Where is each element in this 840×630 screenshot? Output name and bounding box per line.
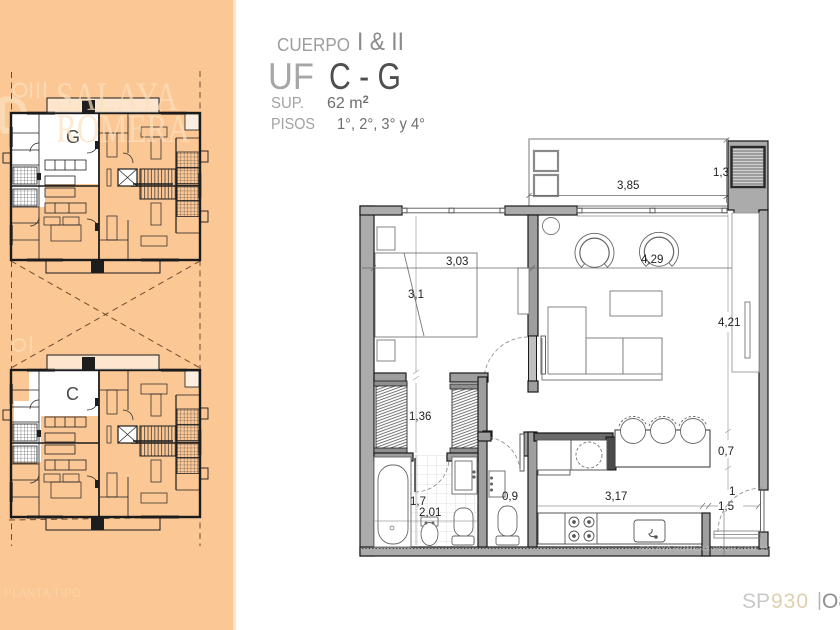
svg-text:O8: O8 bbox=[822, 590, 840, 613]
svg-text:SP: SP bbox=[742, 590, 770, 613]
svg-text:ROMERA: ROMERA bbox=[56, 106, 190, 151]
svg-text:3,85: 3,85 bbox=[617, 180, 639, 192]
svg-text:1°, 2°, 3° y 4°: 1°, 2°, 3° y 4° bbox=[337, 116, 425, 133]
svg-text:PLANTA TIPO: PLANTA TIPO bbox=[4, 588, 81, 600]
svg-text:PISOS: PISOS bbox=[271, 116, 315, 133]
svg-text:62 m2: 62 m2 bbox=[327, 94, 369, 112]
svg-text:3,1: 3,1 bbox=[408, 289, 424, 301]
svg-text:SALAYA ROMERA PROP.COM.AR: SALAYA ROMERA PROP.COM.AR bbox=[640, 544, 772, 553]
svg-text:C: C bbox=[66, 384, 79, 404]
svg-text:I & II: I & II bbox=[357, 28, 404, 56]
svg-text:3,17: 3,17 bbox=[605, 491, 627, 503]
svg-text:1: 1 bbox=[729, 486, 735, 498]
svg-text:4,21: 4,21 bbox=[718, 317, 740, 329]
svg-text:SUP.: SUP. bbox=[271, 95, 304, 112]
svg-text:930: 930 bbox=[771, 590, 809, 613]
svg-text:0,7: 0,7 bbox=[718, 446, 734, 458]
svg-text:1,36: 1,36 bbox=[409, 411, 431, 423]
svg-text:4,29: 4,29 bbox=[641, 254, 663, 266]
svg-text:0,9: 0,9 bbox=[502, 491, 518, 503]
svg-text:CUERPO: CUERPO bbox=[277, 35, 350, 55]
svg-text:2,01: 2,01 bbox=[419, 507, 441, 519]
svg-text:C - G: C - G bbox=[329, 56, 401, 97]
svg-text:1,3: 1,3 bbox=[713, 167, 729, 179]
svg-text:UF: UF bbox=[268, 56, 314, 97]
svg-text:3,03: 3,03 bbox=[446, 256, 468, 268]
